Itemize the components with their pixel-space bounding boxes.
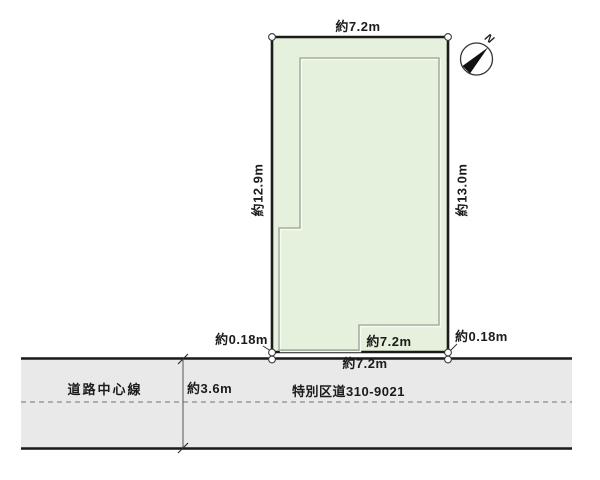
corner-marker-top-left — [269, 34, 276, 41]
corner-marker-bottom-left-plot — [269, 349, 276, 356]
corner-marker-bottom-right-plot — [445, 349, 452, 356]
plot-right-setback-label: 約0.18m — [455, 330, 508, 343]
plot-left-setback-label: 約0.18m — [188, 333, 268, 346]
diagram-shapes — [0, 0, 600, 480]
compass-icon — [461, 43, 493, 75]
plot-boundary — [272, 37, 448, 352]
road-width-label: 約3.6m — [187, 382, 232, 395]
corner-marker-bottom-left-road — [269, 356, 276, 363]
road-centerline-label: 道路中心線 — [45, 383, 165, 396]
plot-bottom-width-label: 約7.2m — [315, 357, 415, 370]
plot-inner-bottom-width-label: 約7.2m — [339, 335, 439, 348]
right-setback-leader-line — [450, 344, 457, 351]
land-plot-diagram: 約7.2m 約12.9m 約13.0m 約7.2m 約7.2m 約0.18m 約… — [0, 0, 600, 480]
road-surface — [21, 357, 572, 450]
corner-marker-top-right — [445, 34, 452, 41]
plot-left-depth-label: 約12.9m — [252, 164, 265, 217]
plot-right-depth-label: 約13.0m — [456, 164, 469, 217]
plot-top-width-label: 約7.2m — [308, 20, 408, 33]
road-name-label: 特別区道310-9021 — [276, 385, 421, 398]
corner-marker-bottom-right-road — [445, 356, 452, 363]
